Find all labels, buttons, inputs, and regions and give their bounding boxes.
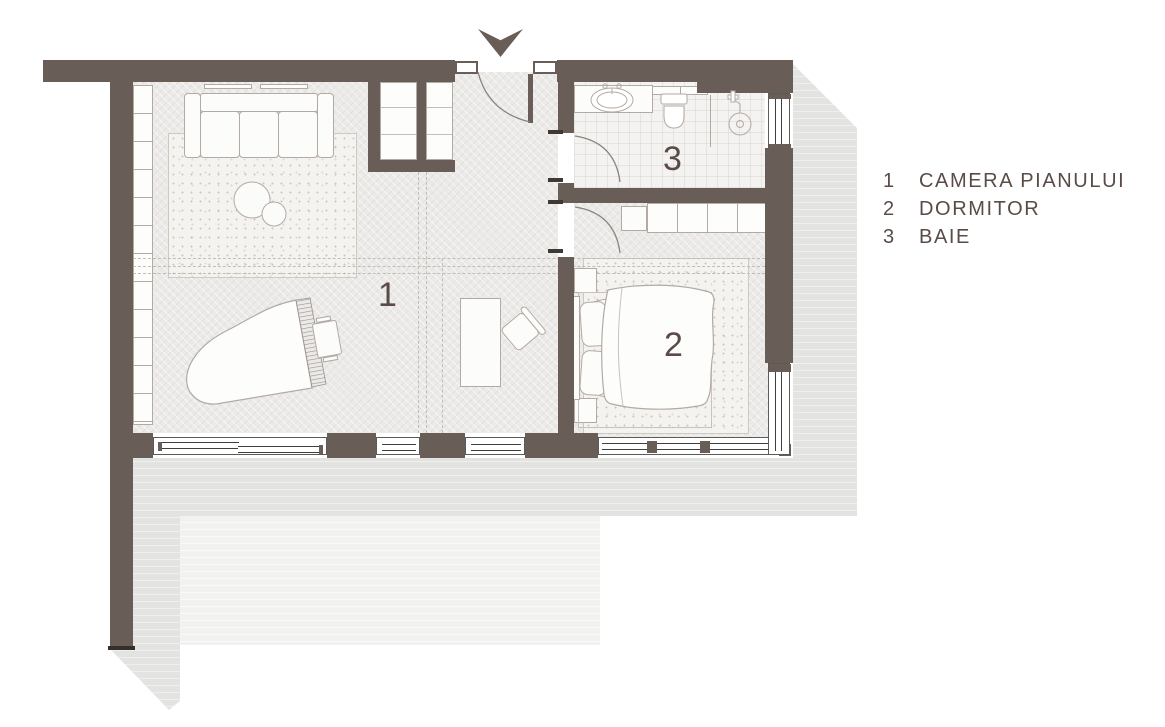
door-hinge-mark: [548, 130, 563, 134]
dashed-line: [133, 258, 765, 259]
legend-row: 2 DORMITOR: [883, 198, 1143, 221]
wall-shelf: [133, 85, 153, 425]
entry-closet-right: [426, 82, 453, 160]
dashed-line: [418, 172, 419, 433]
wall-right: [765, 148, 793, 363]
legend-label: BAIE: [919, 226, 971, 249]
wall-bottom-pier: [327, 433, 376, 458]
wall-bath-bedroom: [558, 188, 768, 203]
window-hall: [465, 437, 525, 455]
wardrobe: [647, 203, 768, 233]
window-piano-room-small: [376, 437, 420, 455]
closet-stub-mid: [417, 82, 426, 172]
dashed-line: [426, 172, 427, 433]
console-shelf: [260, 84, 308, 89]
legend: 1 CAMERA PIANULUI 2 DORMITOR 3 BAIE: [883, 170, 1143, 254]
legend-label: CAMERA PIANULUI: [919, 170, 1125, 193]
sofa-armrest-right: [317, 93, 334, 158]
window-bedroom-corner-bottom: [598, 437, 790, 455]
wall-left-cap: [108, 646, 135, 650]
closet-base: [368, 160, 455, 172]
nightstand-top: [574, 268, 597, 293]
window-bathroom: [768, 93, 790, 148]
window-bedroom-corner-right: [768, 363, 790, 455]
sofa-back: [200, 93, 318, 112]
room-label-piano: 1: [378, 276, 398, 315]
wardrobe-cabinet: [621, 206, 647, 231]
wall-bottom-pier: [110, 433, 153, 458]
floor-plan: 1 2 3 1 CAMERA PIANULUI 2 DORMITOR 3 BAI…: [0, 0, 1165, 727]
legend-number: 2: [883, 198, 919, 221]
sofa-armrest-left: [184, 93, 201, 158]
sofa-cushion: [200, 111, 240, 158]
shower-partition: [710, 95, 711, 147]
entry-closet-left: [380, 82, 417, 160]
entrance-arrow-icon: [478, 29, 523, 57]
legend-row: 1 CAMERA PIANULUI: [883, 170, 1143, 193]
legend-row: 3 BAIE: [883, 226, 1143, 249]
door-hinge-mark: [548, 249, 563, 253]
shower-beam: [697, 82, 765, 93]
legend-number: 1: [883, 170, 919, 193]
dashed-line: [133, 273, 765, 274]
secondary-shadow: [180, 516, 600, 645]
window-piano-room-large: [153, 437, 327, 455]
door-hinge-mark: [548, 200, 563, 204]
sofa-cushion: [239, 111, 279, 158]
wall-bottom-pier: [420, 433, 465, 458]
wall-right-top: [765, 82, 793, 93]
door-jamb-right: [533, 61, 557, 74]
room-label-bathroom: 3: [663, 140, 683, 179]
room-label-bedroom: 2: [664, 326, 684, 365]
legend-number: 3: [883, 226, 919, 249]
vanity-counter: [574, 85, 653, 113]
wall-divider-top: [558, 82, 574, 133]
wall-left: [110, 82, 133, 648]
door-jamb-left: [455, 61, 478, 74]
console-shelf: [204, 84, 252, 89]
dashed-line: [133, 266, 765, 267]
sofa-cushion: [278, 111, 318, 158]
legend-label: DORMITOR: [919, 198, 1040, 221]
wall-bottom-pier: [525, 433, 598, 458]
closet-stub-left: [368, 82, 380, 172]
wall-top-left: [43, 60, 455, 82]
dashed-line: [442, 258, 443, 433]
door-hinge-mark: [548, 178, 563, 182]
entrance-door-leaf: [528, 74, 533, 123]
desk: [460, 298, 501, 387]
bed-frame: [578, 292, 712, 428]
wall-divider-bottom: [558, 257, 574, 433]
wall-top-right: [557, 60, 793, 82]
